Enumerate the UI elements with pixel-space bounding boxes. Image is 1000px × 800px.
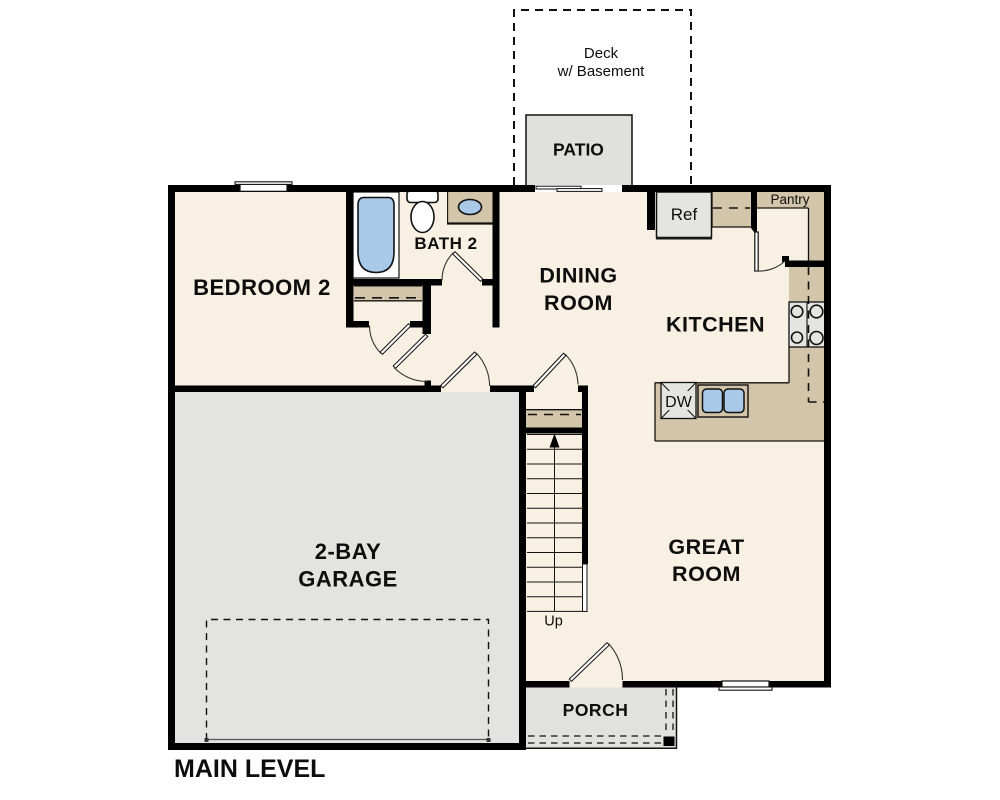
svg-text:KITCHEN: KITCHEN (666, 313, 765, 337)
svg-text:BATH 2: BATH 2 (414, 234, 477, 253)
svg-text:Pantry: Pantry (770, 192, 809, 207)
svg-text:ROOM: ROOM (672, 562, 741, 586)
svg-text:Ref: Ref (671, 205, 698, 224)
svg-text:ROOM: ROOM (544, 291, 613, 315)
svg-text:Up: Up (544, 614, 563, 630)
svg-text:GREAT: GREAT (668, 535, 744, 559)
svg-text:PATIO: PATIO (553, 140, 604, 160)
svg-text:MAIN LEVEL: MAIN LEVEL (174, 755, 325, 783)
svg-text:Deck: Deck (584, 45, 619, 62)
svg-text:GARAGE: GARAGE (298, 567, 398, 592)
svg-text:2-BAY: 2-BAY (315, 539, 382, 564)
svg-text:DW: DW (665, 394, 693, 411)
svg-text:BEDROOM 2: BEDROOM 2 (193, 275, 331, 300)
svg-text:DINING: DINING (539, 264, 617, 288)
svg-text:w/ Basement: w/ Basement (557, 63, 646, 80)
svg-text:PORCH: PORCH (563, 700, 629, 720)
